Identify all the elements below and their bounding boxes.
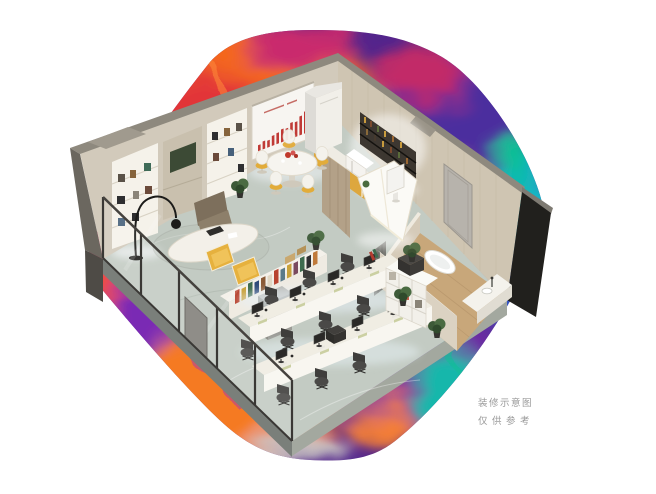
- caption-line-2: 仅供参考: [478, 416, 534, 427]
- office-isometric-render: [0, 0, 656, 494]
- fridge-cabinet: [305, 82, 342, 154]
- caption-line-1: 装修示意图: [478, 398, 534, 409]
- desk-plant: [363, 181, 370, 188]
- render-canvas: 装修示意图 仅供参考: [0, 0, 656, 494]
- caption: 装修示意图 仅供参考: [478, 398, 534, 427]
